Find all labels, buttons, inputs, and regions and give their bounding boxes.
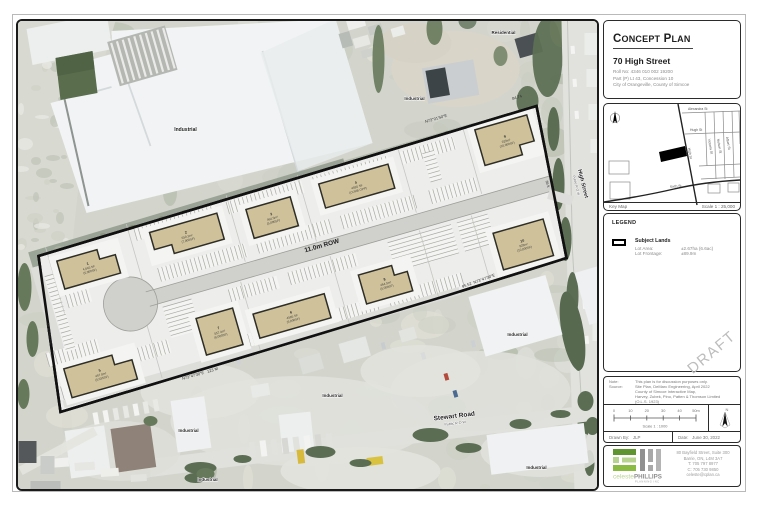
svg-text:Nelson St: Nelson St [716,138,723,153]
svg-text:PLANNING INC: PLANNING INC [635,480,659,484]
svg-text:Scale 1 : 25,000: Scale 1 : 25,000 [702,204,736,209]
svg-text:PHILLIPS: PHILLIPS [634,474,662,481]
svg-text:Industrial: Industrial [507,332,527,337]
svg-text:20: 20 [645,408,650,413]
svg-text:Industrial: Industrial [197,477,217,482]
svg-text:celeste: celeste [613,474,634,481]
svg-text:Alexandra St: Alexandra St [688,107,707,111]
svg-text:Industrial: Industrial [404,96,424,101]
svg-text:30: 30 [661,408,666,413]
svg-text:Albert St: Albert St [725,136,731,150]
svg-text:N: N [726,407,729,412]
svg-text:10: 10 [628,408,633,413]
svg-text:Key Map: Key Map [609,204,628,209]
svg-text:Industrial: Industrial [178,428,198,433]
svg-text:50m: 50m [692,408,700,413]
svg-text:Industrial: Industrial [526,465,546,470]
svg-text:Residential: Residential [491,30,515,35]
svg-text:Industrial: Industrial [322,393,342,398]
svg-text:0: 0 [613,408,616,413]
svg-text:Hugh St: Hugh St [690,128,702,132]
svg-text:Scale 1 : 1000: Scale 1 : 1000 [643,424,669,429]
svg-text:40: 40 [677,408,682,413]
svg-text:Victoria St: Victoria St [707,138,714,154]
svg-text:Industrial: Industrial [174,127,197,133]
